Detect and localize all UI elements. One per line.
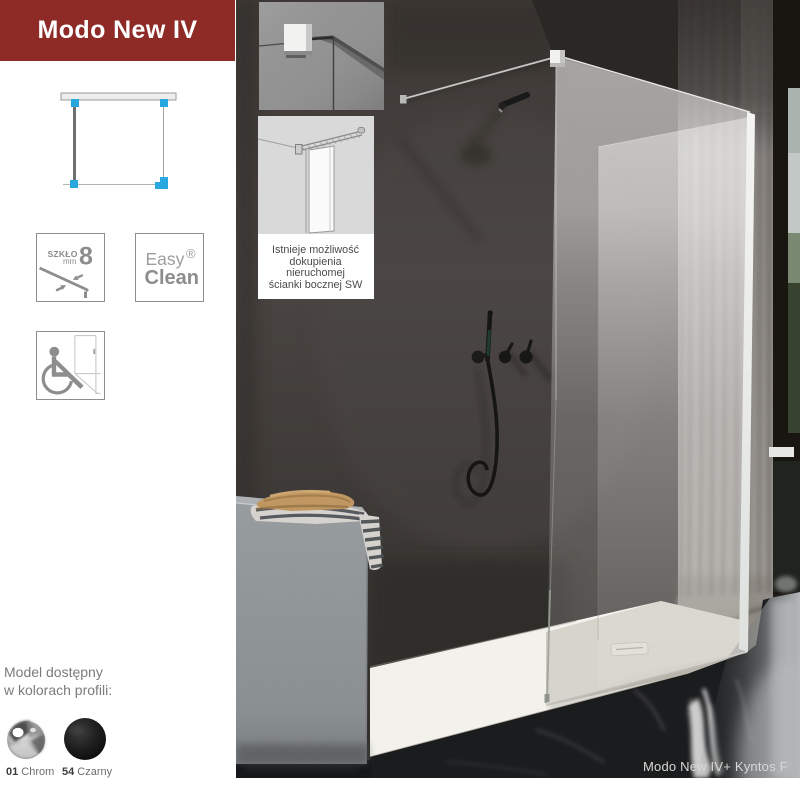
- svg-text:8: 8: [79, 243, 93, 271]
- svg-text:mm: mm: [63, 257, 77, 266]
- svg-text:®: ®: [186, 246, 196, 261]
- svg-text:Clean: Clean: [145, 267, 199, 289]
- svg-text:Easy: Easy: [146, 249, 185, 269]
